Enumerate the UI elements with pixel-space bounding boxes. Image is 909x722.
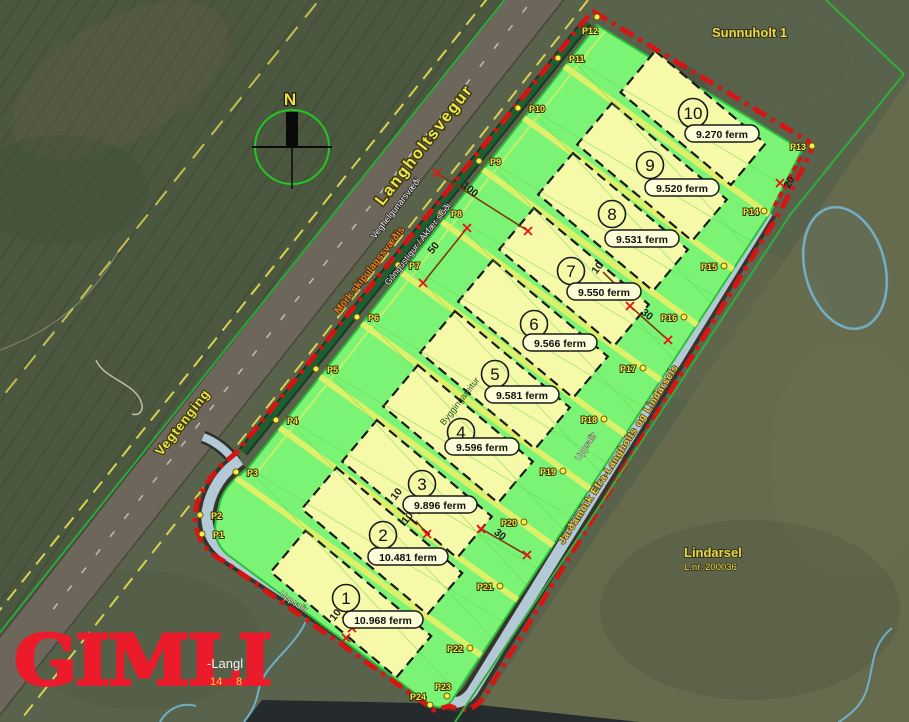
point-label-P24: P24 <box>410 692 426 702</box>
svg-text:9.566 ferm: 9.566 ferm <box>534 338 586 350</box>
point-label-P11: P11 <box>569 54 585 64</box>
partial-map-text: -Langl <box>207 656 243 671</box>
point-marker-P18 <box>601 416 607 422</box>
point-label-P14: P14 <box>743 207 759 217</box>
svg-text:8: 8 <box>607 205 616 224</box>
svg-text:9: 9 <box>645 156 654 175</box>
point-marker-P21 <box>497 583 503 589</box>
point-marker-P1 <box>199 531 205 537</box>
point-marker-P24 <box>427 702 433 708</box>
point-label-P1: P1 <box>213 530 224 540</box>
point-label-P19: P19 <box>540 467 556 477</box>
point-label-P21: P21 <box>477 582 493 592</box>
plot-area-label-4: 9.596 ferm <box>445 438 519 455</box>
plot-area-label-2: 10.481 ferm <box>368 548 448 565</box>
svg-text:10.481 ferm: 10.481 ferm <box>379 552 437 564</box>
plot-area-label-1: 10.968 ferm <box>343 611 423 628</box>
point-label-P4: P4 <box>287 416 298 426</box>
point-label-P13: P13 <box>790 142 806 152</box>
point-label-P8: P8 <box>451 209 462 219</box>
plot-area-label-5: 9.581 ferm <box>485 386 559 403</box>
map-canvas: 100 50 10 30 10 10 30 10 20 <box>0 0 909 722</box>
plot-area-label-8: 9.531 ferm <box>605 230 679 247</box>
point-marker-P11 <box>555 55 561 61</box>
point-label-P23: P23 <box>435 682 451 692</box>
lindarsel-number-label: L.nr. 200036 <box>684 562 737 573</box>
point-label-P12: P12 <box>582 26 598 36</box>
svg-text:2: 2 <box>378 526 387 545</box>
point-label-P7: P7 <box>409 261 420 271</box>
plot-area-label-7: 9.550 ferm <box>567 283 641 300</box>
point-label-P2: P2 <box>211 511 222 521</box>
plot-area-label-6: 9.566 ferm <box>523 334 597 351</box>
plot-area-label-10: 9.270 ferm <box>685 125 759 142</box>
point-marker-P13 <box>809 143 815 149</box>
plot-area-label-9: 9.520 ferm <box>645 179 719 196</box>
north-label: N <box>284 90 296 109</box>
point-marker-P9 <box>476 158 482 164</box>
svg-text:9.270 ferm: 9.270 ferm <box>696 129 748 141</box>
point-marker-P2 <box>197 512 203 518</box>
svg-text:9.596 ferm: 9.596 ferm <box>456 442 508 454</box>
svg-text:9.581 ferm: 9.581 ferm <box>496 390 548 402</box>
partial-number: 8 <box>236 676 242 688</box>
svg-text:9.550 ferm: 9.550 ferm <box>578 287 630 299</box>
svg-text:9.520 ferm: 9.520 ferm <box>656 183 708 195</box>
svg-text:10.968 ferm: 10.968 ferm <box>354 615 412 627</box>
svg-text:5: 5 <box>490 365 499 384</box>
point-marker-P16 <box>681 314 687 320</box>
lindarsel-label: Lindarsel <box>684 545 742 560</box>
svg-text:7: 7 <box>566 262 575 281</box>
point-marker-P4 <box>273 417 279 423</box>
point-marker-P5 <box>313 366 319 372</box>
point-label-P20: P20 <box>501 518 517 528</box>
partial-number: 14 <box>210 676 222 688</box>
svg-text:9.531 ferm: 9.531 ferm <box>616 234 668 246</box>
point-label-P6: P6 <box>368 313 379 323</box>
point-marker-P14 <box>761 208 767 214</box>
point-marker-P23 <box>444 693 450 699</box>
point-marker-P3 <box>233 469 239 475</box>
point-label-P15: P15 <box>701 262 717 272</box>
point-label-P16: P16 <box>661 313 677 323</box>
point-label-P17: P17 <box>620 364 636 374</box>
point-label-P9: P9 <box>490 157 501 167</box>
point-label-P10: P10 <box>529 104 545 114</box>
svg-text:3: 3 <box>417 475 426 494</box>
point-label-P5: P5 <box>327 365 338 375</box>
svg-text:10: 10 <box>684 104 703 123</box>
svg-text:1: 1 <box>341 589 350 608</box>
plot-area-label-3: 9.896 ferm <box>403 496 477 513</box>
point-marker-P15 <box>721 263 727 269</box>
point-marker-P19 <box>560 468 566 474</box>
north-arrow <box>286 112 298 147</box>
point-label-P22: P22 <box>447 644 463 654</box>
svg-text:9.896 ferm: 9.896 ferm <box>414 500 466 512</box>
point-marker-P17 <box>640 365 646 371</box>
point-label-P3: P3 <box>247 468 258 478</box>
point-marker-P22 <box>467 645 473 651</box>
point-marker-P20 <box>521 519 527 525</box>
svg-text:6: 6 <box>529 315 538 334</box>
point-marker-P6 <box>354 314 360 320</box>
point-label-P18: P18 <box>581 415 597 425</box>
sunnuholt-label: Sunnuholt 1 <box>712 25 787 40</box>
point-marker-P12 <box>594 14 600 20</box>
point-marker-P10 <box>515 105 521 111</box>
site-plan-map: 100 50 10 30 10 10 30 10 20 <box>0 0 909 722</box>
